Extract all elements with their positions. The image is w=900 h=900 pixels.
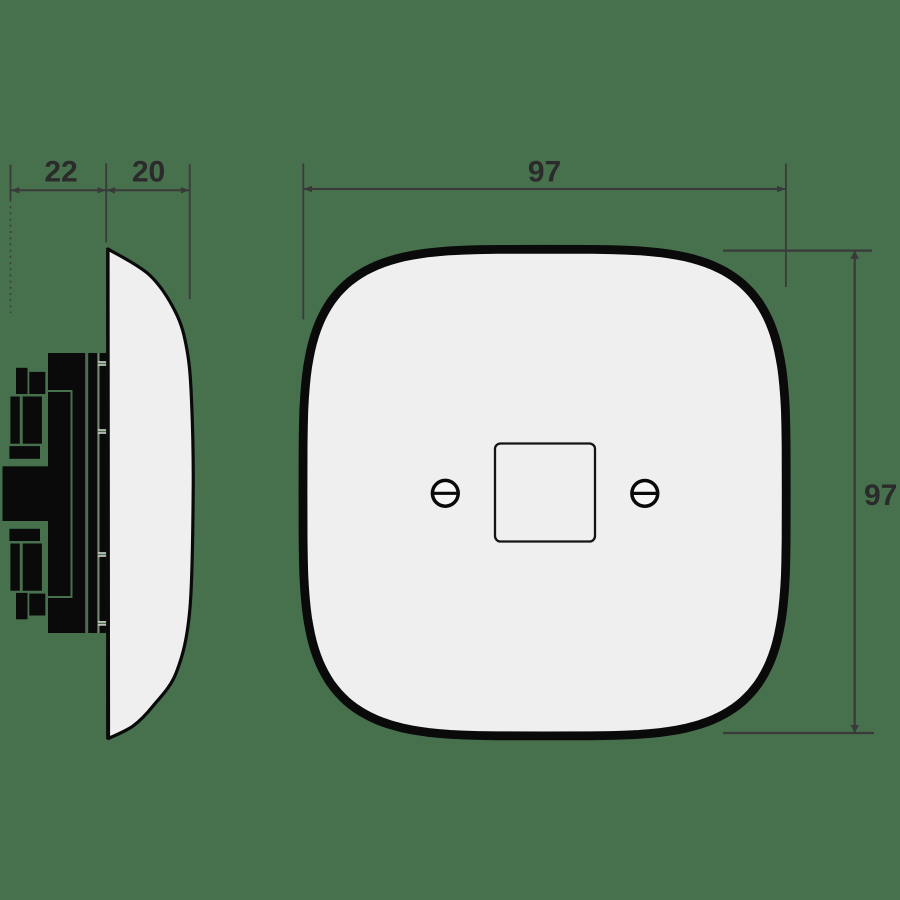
svg-text:97: 97 xyxy=(864,479,897,512)
svg-text:20: 20 xyxy=(132,156,165,189)
svg-text:97: 97 xyxy=(528,155,561,188)
svg-text:22: 22 xyxy=(44,156,77,189)
